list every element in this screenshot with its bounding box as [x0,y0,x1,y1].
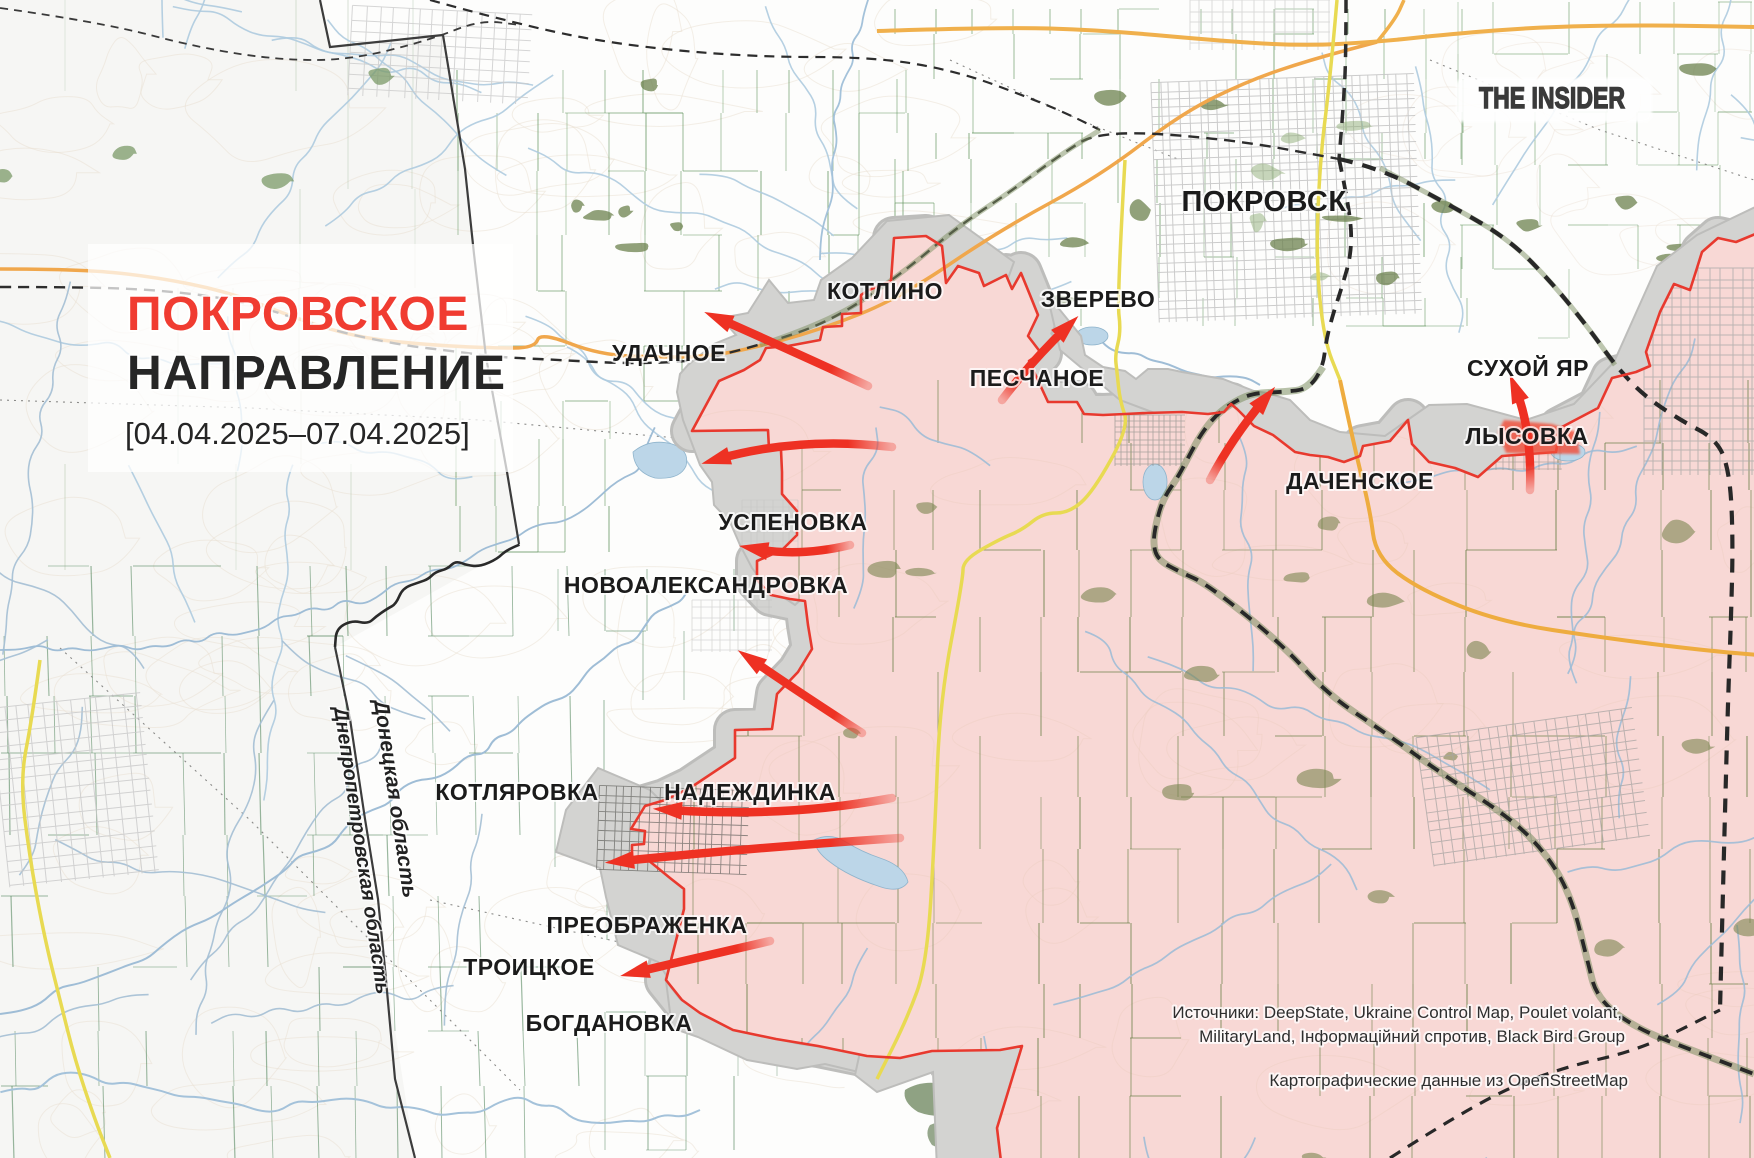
svg-text:ЗВЕРЕВО: ЗВЕРЕВО [1041,286,1155,312]
svg-text:MilitaryLand, Інформаційний сп: MilitaryLand, Інформаційний спротив, Bla… [1199,1027,1625,1046]
svg-text:КОТЛИНО: КОТЛИНО [827,278,943,304]
svg-text:Источники: DeepState, Ukraine: Источники: DeepState, Ukraine Control Ma… [1172,1003,1622,1022]
svg-text:THE INSIDER: THE INSIDER [1479,82,1625,115]
svg-text:УДАЧНОЕ: УДАЧНОЕ [612,340,726,366]
svg-text:ПЕСЧАНОЕ: ПЕСЧАНОЕ [970,365,1105,391]
svg-text:НОВОАЛЕКСАНДРОВКА: НОВОАЛЕКСАНДРОВКА [564,572,848,598]
svg-text:КОТЛЯРОВКА: КОТЛЯРОВКА [435,779,598,805]
svg-text:НАПРАВЛЕНИЕ: НАПРАВЛЕНИЕ [127,347,506,400]
svg-text:СУХОЙ ЯР: СУХОЙ ЯР [1467,354,1589,381]
svg-text:Картографические данные из Ope: Картографические данные из OpenStreetMap [1269,1071,1628,1090]
svg-text:УСПЕНОВКА: УСПЕНОВКА [718,509,867,535]
svg-text:БОГДАНОВКА: БОГДАНОВКА [526,1010,693,1036]
svg-text:[04.04.2025–07.04.2025]: [04.04.2025–07.04.2025] [125,416,470,451]
svg-text:ЛЫСОВКА: ЛЫСОВКА [1465,423,1588,449]
svg-text:ПОКРОВСКОЕ: ПОКРОВСКОЕ [127,288,469,341]
svg-text:ПОКРОВСК: ПОКРОВСК [1181,186,1346,218]
svg-text:ДАЧЕНСКОЕ: ДАЧЕНСКОЕ [1286,468,1434,494]
svg-text:НАДЕЖДИНКА: НАДЕЖДИНКА [664,779,836,805]
svg-text:ПРЕОБРАЖЕНКА: ПРЕОБРАЖЕНКА [547,912,748,938]
svg-text:ТРОИЦКОЕ: ТРОИЦКОЕ [463,954,595,980]
